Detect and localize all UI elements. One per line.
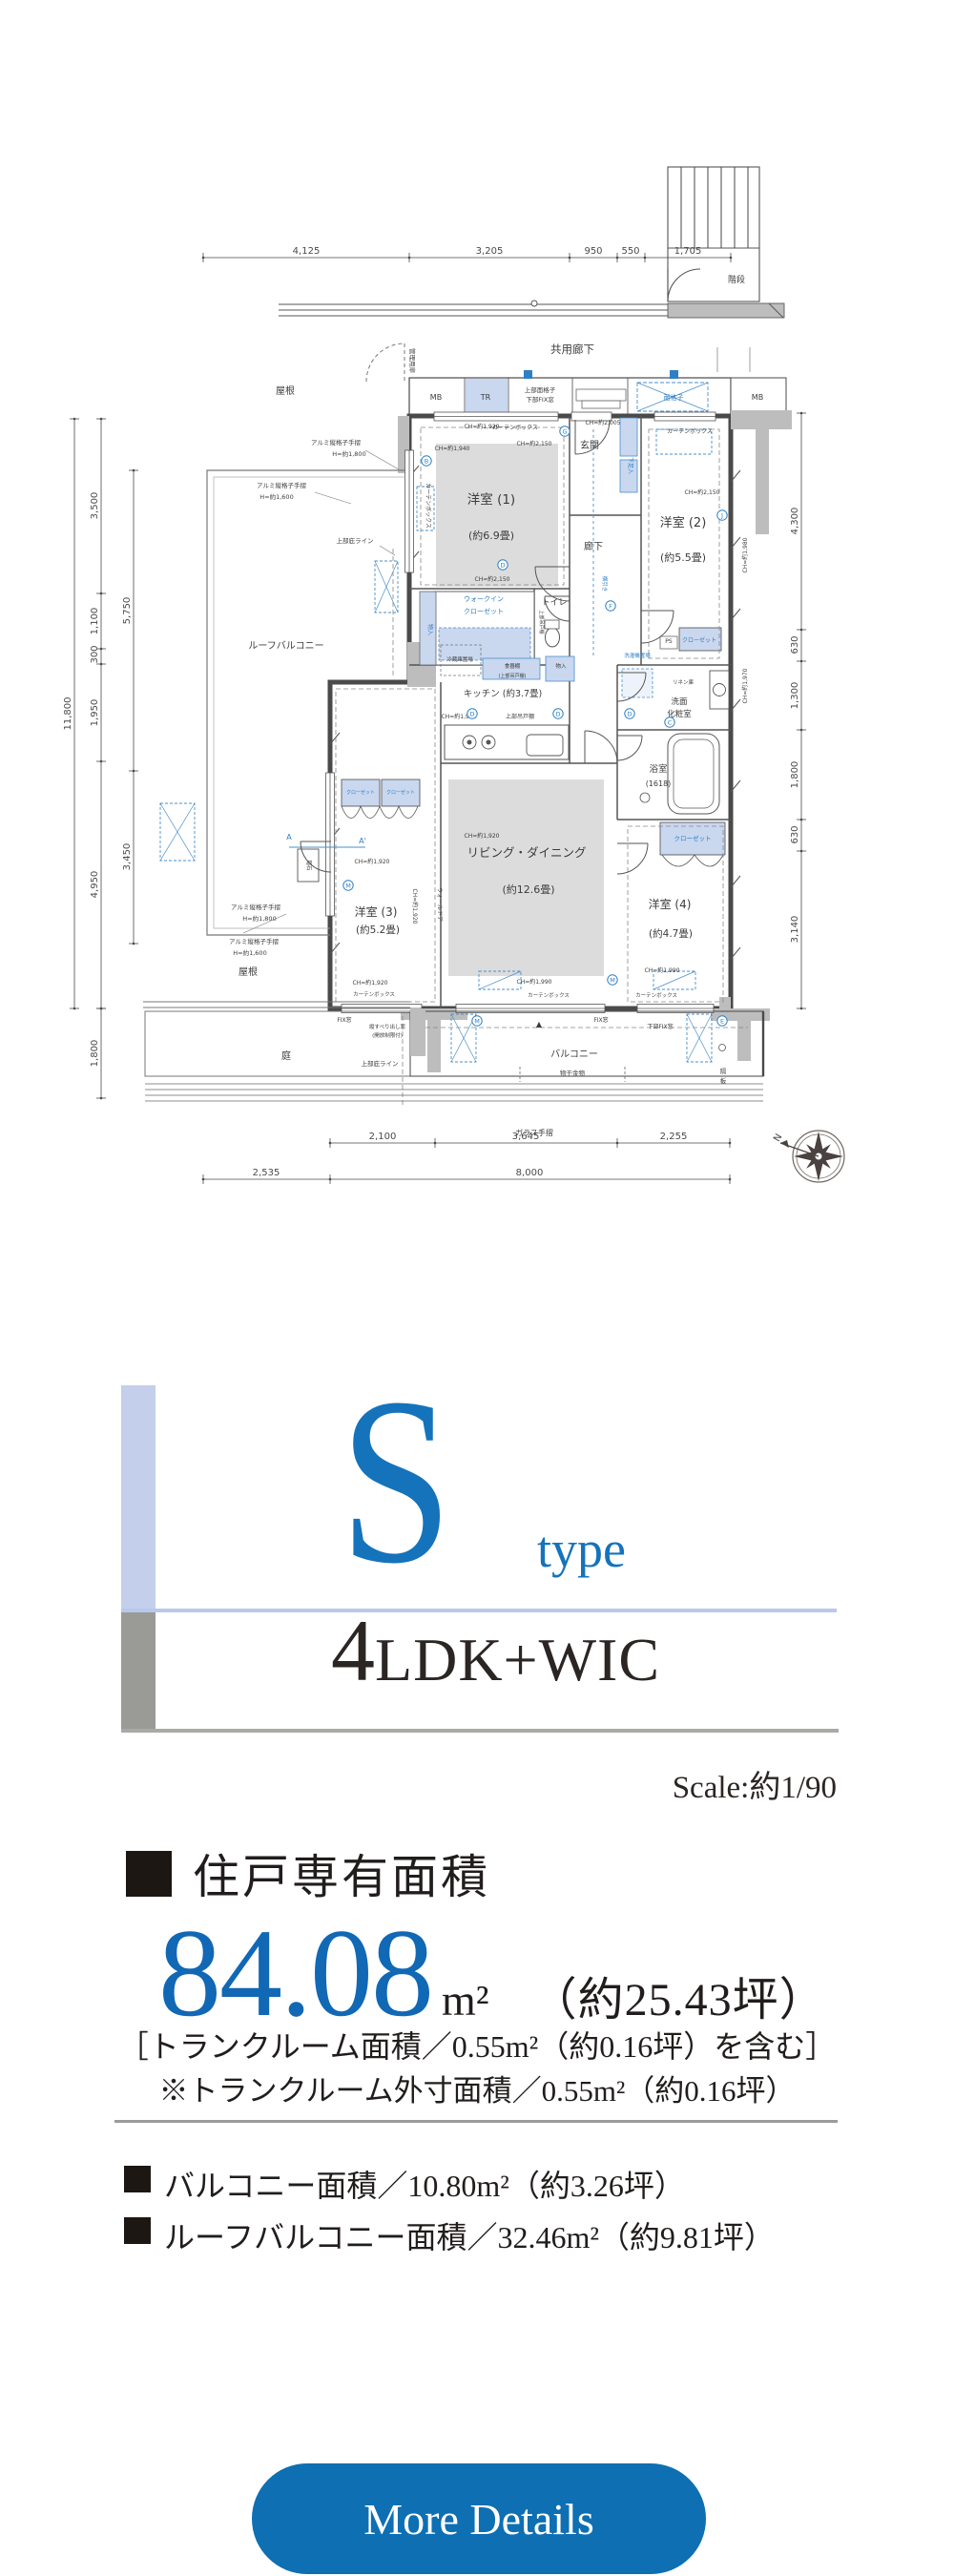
svg-text:上部庇ライン: 上部庇ライン [337, 536, 374, 545]
svg-text:5,750: 5,750 [122, 597, 133, 625]
svg-text:管理用扉: 管理用扉 [408, 348, 417, 374]
roof-balcony-area-text: ルーフバルコニー面積／32.46m²（約9.81坪） [164, 2213, 775, 2257]
svg-text:FIX窓: FIX窓 [593, 1016, 608, 1024]
svg-text:カーテンボックス: カーテンボックス [353, 990, 395, 998]
svg-text:CH=約1,920: CH=約1,920 [411, 889, 419, 924]
svg-text:300: 300 [90, 645, 100, 663]
svg-text:ルーフバルコニー: ルーフバルコニー [248, 640, 323, 652]
svg-text:下足入: 下足入 [627, 457, 633, 474]
svg-text:洋室 (1): 洋室 (1) [467, 491, 515, 508]
svg-text:キッチン (約3.7畳): キッチン (約3.7畳) [464, 688, 543, 699]
svg-text:CH=約1,940: CH=約1,940 [435, 445, 470, 452]
svg-text:カーテンボックス: カーテンボックス [635, 991, 677, 999]
balcony [145, 1008, 763, 1101]
svg-text:2,535: 2,535 [253, 1168, 280, 1178]
svg-text:(約4.7畳): (約4.7畳) [649, 927, 693, 940]
svg-text:アルミ縦格子手摺: アルミ縦格子手摺 [311, 438, 361, 447]
area-unit: m² [442, 1975, 489, 2025]
svg-text:CH=約1,920: CH=約1,920 [465, 423, 500, 430]
svg-text:洋室 (2): 洋室 (2) [660, 515, 707, 530]
svg-text:1,950: 1,950 [90, 699, 100, 727]
svg-text:CH=約1,920: CH=約1,920 [355, 858, 390, 865]
svg-text:屋根: 屋根 [238, 966, 258, 978]
svg-text:リネン庫: リネン庫 [673, 678, 695, 686]
svg-text:4,125: 4,125 [293, 246, 321, 257]
svg-text:▲: ▲ [536, 1020, 543, 1028]
svg-text:1,800: 1,800 [90, 1040, 100, 1068]
svg-text:1,800: 1,800 [790, 761, 800, 789]
square-bullet-icon [126, 1851, 172, 1897]
svg-text:G: G [562, 427, 567, 435]
svg-text:庭: 庭 [281, 1049, 291, 1062]
svg-text:1,100: 1,100 [90, 608, 100, 635]
svg-text:クローゼット: クローゼット [682, 636, 716, 644]
svg-text:(1618): (1618) [646, 779, 672, 788]
svg-text:アルミ縦格子手摺: アルミ縦格子手摺 [257, 481, 306, 489]
svg-text:廊下: 廊下 [584, 540, 603, 552]
type-rule-gray [121, 1729, 839, 1733]
svg-text:横引き: 横引き [601, 576, 609, 592]
svg-text:縦すべり出し窓: 縦すべり出し窓 [369, 1023, 406, 1030]
svg-text:D: D [500, 561, 505, 569]
svg-text:クローゼット: クローゼット [674, 834, 712, 842]
svg-text:D: D [555, 710, 560, 717]
svg-text:B: B [425, 457, 428, 465]
svg-text:PS: PS [665, 638, 673, 645]
svg-text:上部吊戸棚: 上部吊戸棚 [506, 713, 534, 720]
meter-band [409, 347, 786, 416]
svg-text:A: A [286, 833, 292, 841]
type-accent-bar-blue [121, 1385, 156, 1610]
svg-text:隔: 隔 [720, 1067, 727, 1075]
svg-text:カーテンボックス: カーテンボックス [425, 483, 432, 529]
svg-text:E: E [720, 1017, 724, 1025]
svg-text:D: D [627, 710, 632, 717]
floor-plan: 4,1253,2059505501,70511,8003,5001,100300… [0, 114, 954, 1221]
roof-balcony-area-row: ルーフバルコニー面積／32.46m²（約9.81坪） [124, 2213, 775, 2257]
svg-text:550: 550 [621, 246, 639, 257]
svg-text:ウォールドア: ウォールドア [436, 887, 444, 922]
area-value: 84.08 [158, 1910, 432, 2036]
type-letter: S [340, 1362, 452, 1601]
area-heading-text: 住戸専有面積 [193, 1839, 490, 1907]
svg-text:ウォークイン: ウォークイン [464, 595, 504, 603]
corridor-railing [279, 301, 668, 316]
svg-text:クローゼット: クローゼット [464, 607, 504, 615]
svg-text:リビング・ダイニング: リビング・ダイニング [467, 845, 586, 860]
svg-text:CH=約2,150: CH=約2,150 [475, 575, 510, 583]
svg-text:J: J [720, 511, 723, 519]
svg-text:CH=約1,980: CH=約1,980 [741, 537, 749, 572]
section-divider [114, 2120, 838, 2123]
area-tsubo: （約25.43坪） [531, 1962, 826, 2028]
svg-text:屋根: 屋根 [276, 384, 295, 397]
svg-text:4,950: 4,950 [90, 871, 100, 899]
compass-icon [780, 1131, 844, 1182]
svg-text:カーテンボックス: カーテンボックス [667, 427, 713, 435]
svg-text:1,300: 1,300 [790, 682, 800, 710]
layout-label: 4LDK+WIC [331, 1607, 660, 1694]
svg-text:物干金物: 物干金物 [560, 1069, 586, 1077]
svg-text:ガラス手摺: ガラス手摺 [515, 1128, 553, 1137]
svg-text:上部面格子: 上部面格子 [525, 385, 556, 394]
svg-text:物入: 物入 [426, 624, 434, 635]
square-bullet-icon [124, 2166, 151, 2192]
svg-text:(約5.2畳): (約5.2畳) [356, 924, 400, 936]
svg-text:630: 630 [790, 825, 800, 843]
square-bullet-icon [124, 2217, 151, 2244]
svg-text:MB: MB [752, 393, 763, 402]
svg-text:共用廊下: 共用廊下 [550, 343, 594, 356]
svg-text:CH=約2,150: CH=約2,150 [517, 440, 552, 447]
svg-text:CH=約1,920: CH=約1,920 [465, 832, 500, 840]
svg-text:TR: TR [480, 393, 491, 402]
star-icon [670, 370, 678, 379]
svg-text:CH=約1,970: CH=約1,970 [741, 668, 749, 703]
svg-text:H=約1,600: H=約1,600 [233, 948, 266, 957]
svg-text:アルミ縦格子手摺: アルミ縦格子手摺 [231, 903, 280, 911]
management-door [366, 343, 404, 382]
svg-text:洋室 (3): 洋室 (3) [355, 904, 398, 919]
svg-text:面格子: 面格子 [664, 393, 684, 402]
svg-text:上部吊戸棚: 上部吊戸棚 [538, 610, 545, 634]
svg-text:3,450: 3,450 [122, 843, 133, 871]
svg-text:M: M [474, 1017, 480, 1025]
bedroom1-carpet [436, 444, 558, 587]
svg-text:下部FIX窓: 下部FIX窓 [647, 1023, 673, 1030]
svg-text:クローゼット: クローゼット [386, 789, 415, 796]
page: 4,1253,2059505501,70511,8003,5001,100300… [0, 0, 954, 2576]
svg-text:洗面: 洗面 [671, 696, 688, 707]
svg-text:11,800: 11,800 [63, 697, 73, 731]
svg-text:1,705: 1,705 [674, 246, 702, 257]
svg-text:H=約1,600: H=約1,600 [259, 492, 293, 501]
svg-text:CH=約1,990: CH=約1,990 [645, 966, 680, 974]
svg-text:CH=約1,990: CH=約1,990 [517, 978, 552, 986]
svg-text:950: 950 [584, 246, 602, 257]
stair-sill [668, 303, 784, 318]
svg-text:(上部吊戸棚): (上部吊戸棚) [499, 673, 527, 679]
svg-text:踏石: 踏石 [305, 860, 313, 871]
svg-text:C: C [668, 718, 673, 726]
svg-text:食器棚: 食器棚 [505, 662, 521, 670]
trunk-note-1: ［トランクルーム面積／0.55m²（約0.16坪）を含む］ [0, 2023, 954, 2067]
svg-text:F: F [609, 602, 612, 610]
area-heading: 住戸専有面積 [126, 1839, 490, 1907]
svg-text:アルミ縦格子手摺: アルミ縦格子手摺 [229, 937, 279, 945]
svg-text:洋室 (4): 洋室 (4) [649, 897, 692, 911]
more-details-button[interactable]: More Details [252, 2463, 706, 2574]
type-word: type [537, 1524, 626, 1575]
scale-label: Scale:約1/90 [673, 1761, 837, 1807]
layout-number: 4 [331, 1602, 375, 1699]
svg-text:玄関: 玄関 [580, 439, 599, 451]
svg-text:CH=約1,920: CH=約1,920 [353, 979, 388, 987]
svg-text:D: D [469, 710, 474, 717]
svg-text:H=約1,800: H=約1,800 [242, 914, 276, 923]
area-value-row: 84.08 m² （約25.43坪） [158, 1910, 826, 2036]
svg-text:M: M [610, 976, 615, 984]
svg-text:3,500: 3,500 [90, 492, 100, 520]
balcony-area-text: バルコニー面積／10.80m²（約3.26坪） [164, 2162, 685, 2206]
svg-text:3,205: 3,205 [476, 246, 504, 257]
svg-text:カーテンボックス: カーテンボックス [528, 991, 570, 999]
living-carpet [448, 779, 604, 976]
svg-text:下部FIX窓: 下部FIX窓 [526, 395, 554, 404]
svg-text:FIX窓: FIX窓 [337, 1016, 351, 1024]
svg-text:板: 板 [720, 1076, 727, 1085]
svg-text:8,000: 8,000 [516, 1168, 544, 1178]
svg-text:上部庇ライン: 上部庇ライン [362, 1059, 399, 1068]
svg-text:バルコニー: バルコニー [550, 1049, 598, 1060]
stairs [668, 167, 759, 301]
svg-text:630: 630 [790, 635, 800, 654]
svg-text:(開放制限付): (開放制限付) [372, 1031, 403, 1039]
svg-text:(約5.5畳): (約5.5畳) [660, 551, 706, 564]
star-icon [524, 370, 532, 379]
svg-text:(約12.6畳): (約12.6畳) [502, 883, 554, 896]
svg-text:トイレ: トイレ [541, 598, 567, 608]
svg-text:(約6.9畳): (約6.9畳) [468, 529, 514, 542]
svg-text:洗濯機置場: 洗濯機置場 [624, 652, 651, 659]
svg-text:MB: MB [430, 393, 442, 402]
svg-text:2,100: 2,100 [369, 1132, 397, 1142]
svg-text:H=約1,800: H=約1,800 [332, 449, 365, 458]
trunk-note-2: ※トランクルーム外寸面積／0.55m²（約0.16坪） [0, 2067, 954, 2109]
type-accent-bar-gray [121, 1612, 156, 1731]
svg-text:CH=約2,150: CH=約2,150 [685, 488, 720, 496]
svg-text:物入: 物入 [555, 662, 567, 670]
svg-text:階段: 階段 [728, 274, 745, 285]
svg-text:冷蔵庫置場: 冷蔵庫置場 [446, 655, 473, 663]
layout-suffix: LDK+WIC [375, 1626, 660, 1693]
svg-text:A': A' [359, 837, 366, 845]
svg-text:M: M [345, 882, 351, 889]
svg-text:CH=約2,005: CH=約2,005 [586, 419, 621, 426]
svg-text:クローゼット: クローゼット [346, 789, 375, 796]
svg-text:2,255: 2,255 [660, 1132, 688, 1142]
balcony-area-row: バルコニー面積／10.80m²（約3.26坪） [124, 2162, 685, 2206]
svg-text:4,300: 4,300 [790, 508, 800, 535]
svg-text:3,140: 3,140 [790, 916, 800, 944]
svg-text:浴室: 浴室 [649, 763, 667, 775]
